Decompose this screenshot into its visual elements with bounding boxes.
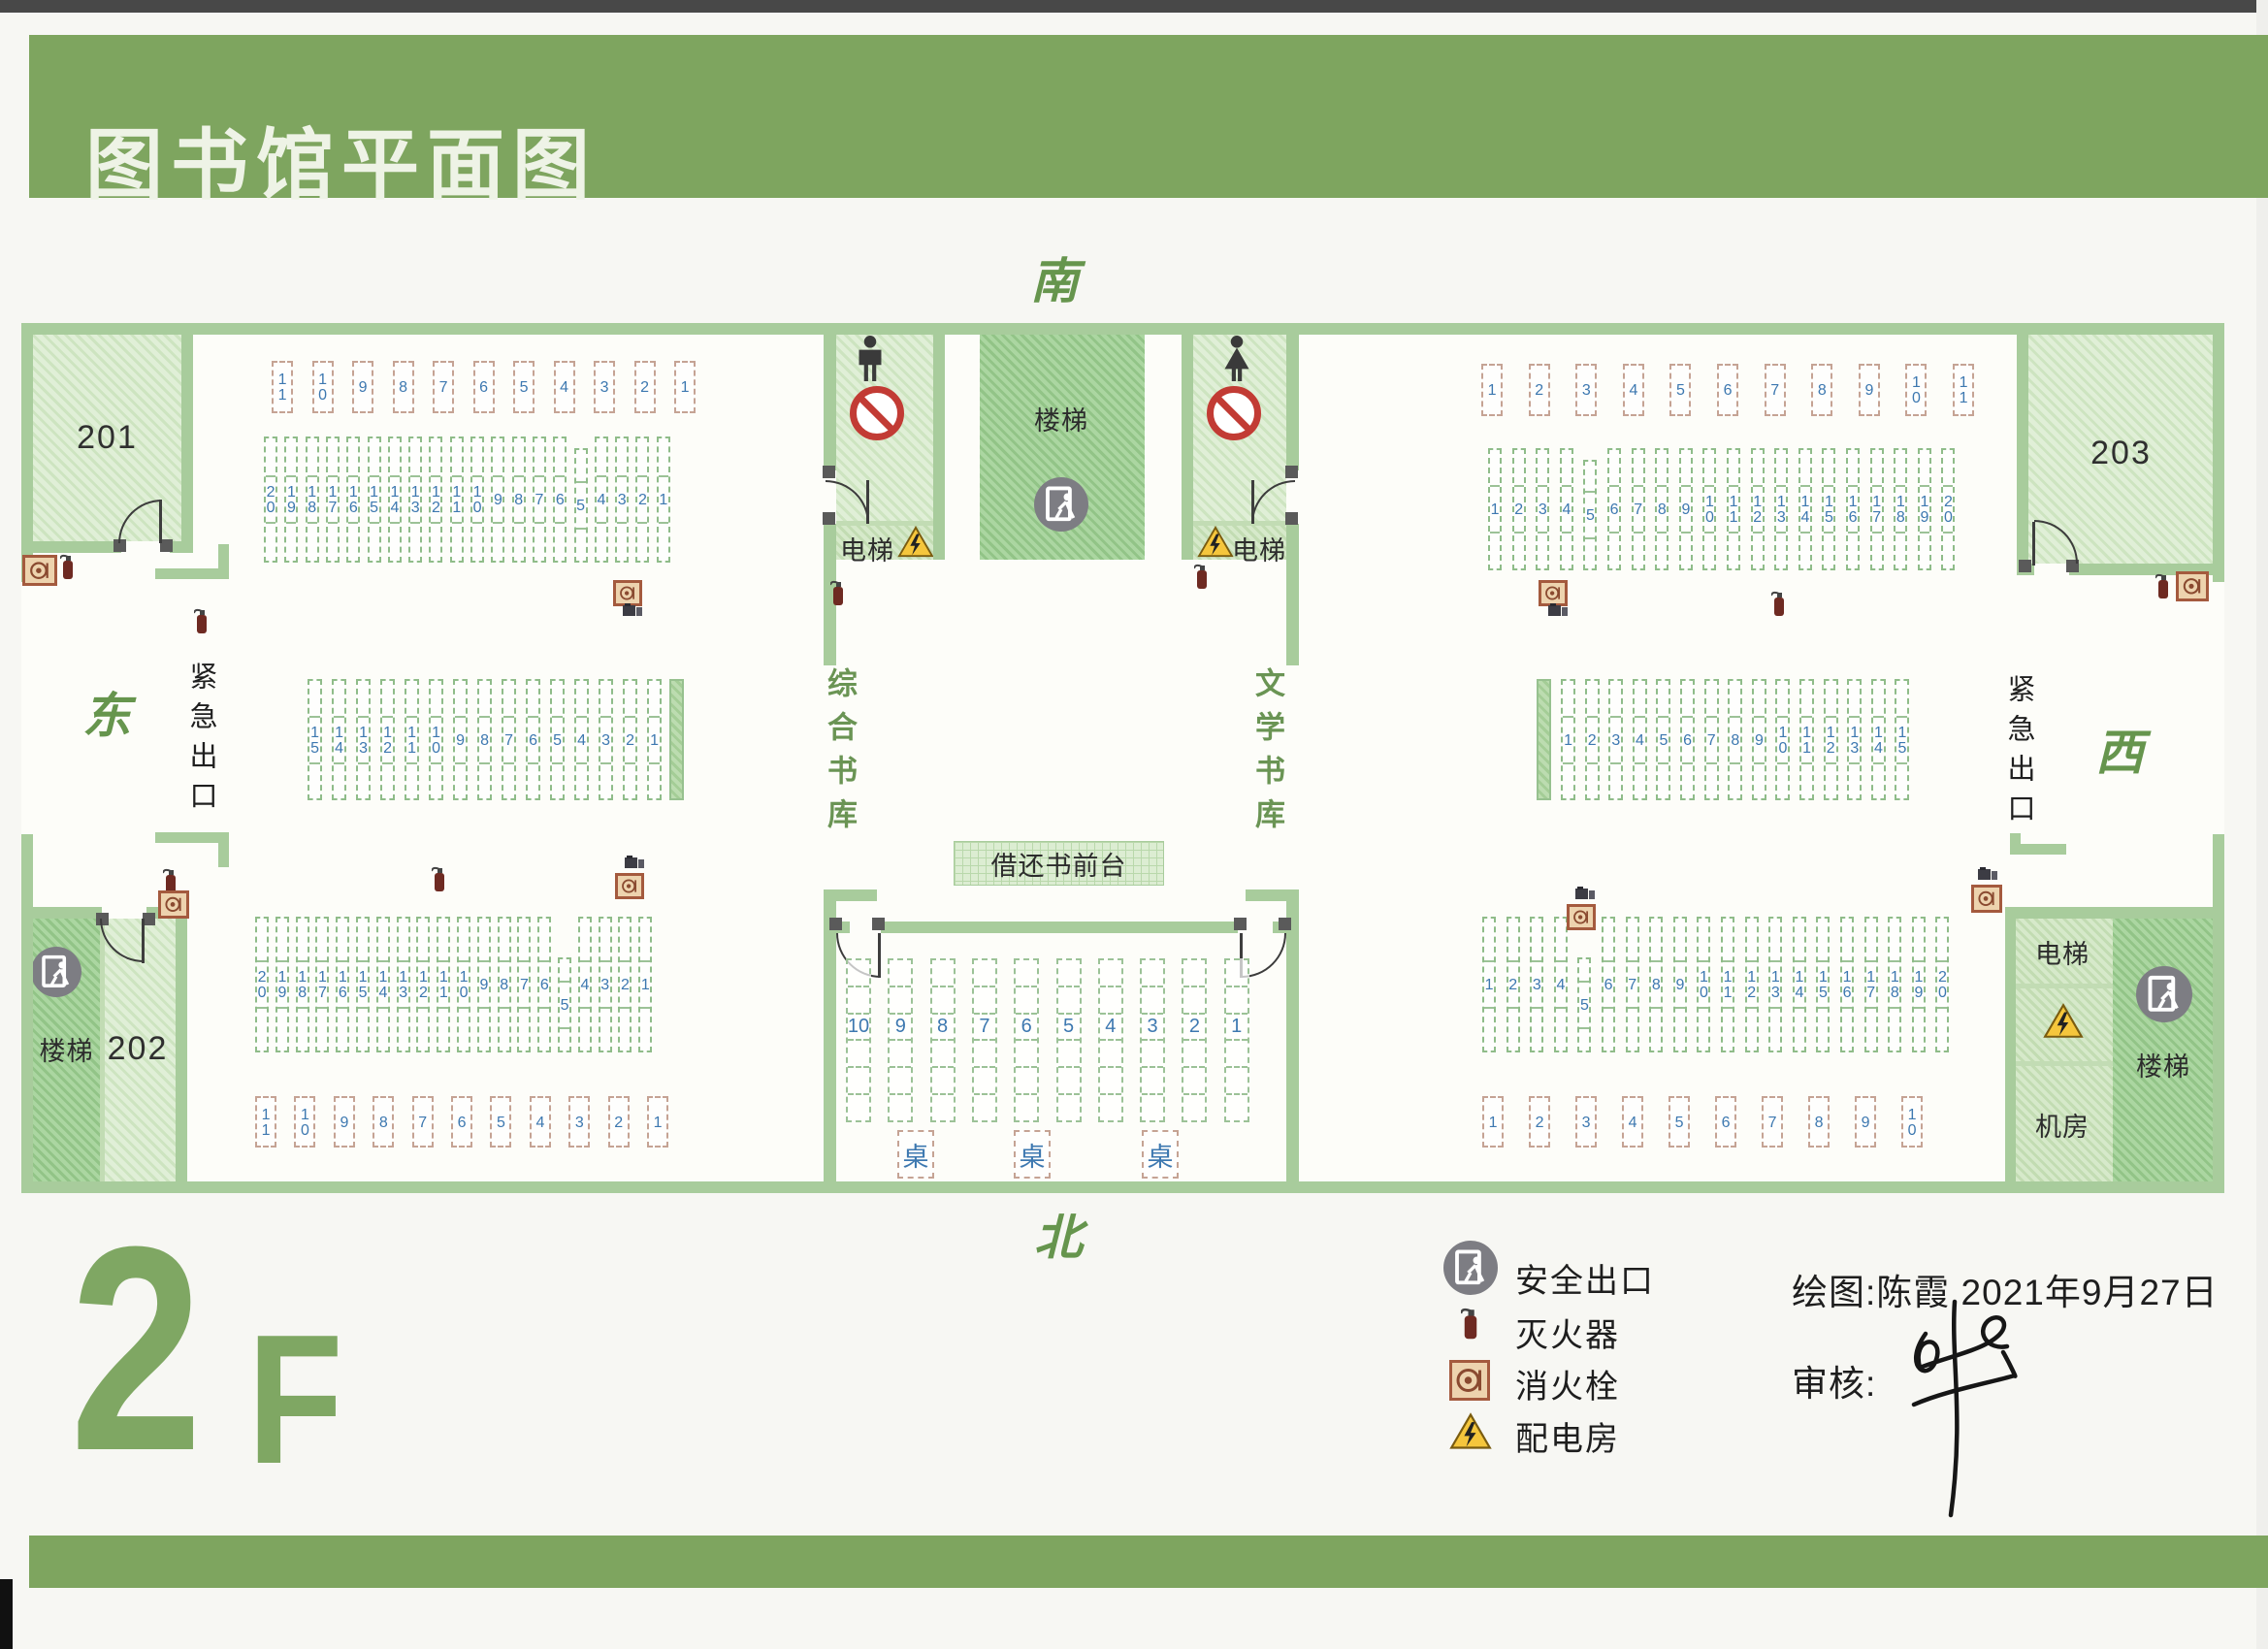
fire-hydrant-icon xyxy=(158,890,189,919)
shelf-part: 15 xyxy=(358,960,368,1009)
shelf-part: 6 xyxy=(1682,716,1693,764)
bookshelf: 12 xyxy=(1751,448,1765,570)
bookshelf: 1 xyxy=(1482,1096,1504,1148)
table-cell xyxy=(1226,1095,1247,1120)
shelf-part xyxy=(1800,450,1810,485)
shelf-part: 7 xyxy=(1706,716,1717,764)
bookshelf: 6 xyxy=(451,1096,472,1148)
power-warning-icon-left xyxy=(897,526,934,559)
shelf-part: 18 xyxy=(308,475,317,524)
bookshelf: 15 xyxy=(308,679,322,800)
bookshelf: 3 xyxy=(599,917,612,1052)
shelf-part: 9 xyxy=(479,960,489,1009)
fire-extinguisher-icon xyxy=(60,553,76,580)
reading-table: 9 xyxy=(888,958,913,1122)
bookshelf: 7 xyxy=(1704,679,1719,800)
shelf-part xyxy=(1890,919,1899,960)
table-cell: 1 xyxy=(1226,1015,1247,1042)
table-cell xyxy=(974,1095,995,1120)
floor-number: 2 xyxy=(70,1203,203,1494)
shelf-part: 8 xyxy=(1651,960,1661,1009)
table-cell: 4 xyxy=(1100,1015,1121,1042)
bookshelf: 8 xyxy=(498,917,511,1052)
wall xyxy=(21,323,33,582)
bookshelf: 9 xyxy=(477,917,491,1052)
shelf-part xyxy=(1866,1009,1876,1051)
shelf-part xyxy=(309,764,320,799)
shelf-part xyxy=(257,919,267,960)
shelf-part: 5 xyxy=(1579,981,1589,1029)
desk-zone-label-1: 桌 xyxy=(897,1130,934,1179)
shelf-part xyxy=(1514,533,1524,568)
shelf-part: 3 xyxy=(617,475,627,524)
shelf-part xyxy=(535,524,544,561)
shelf-part xyxy=(620,919,630,960)
table-cell xyxy=(932,1095,954,1120)
shelf-part xyxy=(1873,764,1884,799)
shelf-part xyxy=(555,524,565,561)
shelf-part: 4 xyxy=(597,475,606,524)
shelf-part: 17 xyxy=(328,475,338,524)
shelf-part xyxy=(555,438,565,475)
bookshelf: 9 xyxy=(1679,448,1693,570)
shelf-part xyxy=(1723,1009,1733,1051)
door-post xyxy=(872,918,885,930)
shelf-part xyxy=(1538,533,1547,568)
shelf-part xyxy=(600,764,611,799)
shelf-part xyxy=(459,919,469,960)
table-cell: 9 xyxy=(890,1015,911,1042)
table-cell xyxy=(1183,987,1205,1015)
shelf-part xyxy=(358,764,369,799)
door-post xyxy=(1285,466,1298,478)
shelf-part: 5 xyxy=(1658,716,1669,764)
shelf-part xyxy=(298,919,308,960)
bookshelf: 3 xyxy=(1536,448,1549,570)
table-cell xyxy=(1183,1041,1205,1068)
door-post xyxy=(2019,560,2031,572)
bookshelf: 5 xyxy=(1656,679,1670,800)
power-room-icon xyxy=(1449,1412,1492,1451)
shelf-part xyxy=(1848,450,1858,485)
shelf-part xyxy=(1754,764,1765,799)
fire-extinguisher-unit-icon xyxy=(624,856,645,871)
shelf-part xyxy=(418,919,428,960)
table-cell xyxy=(1058,987,1080,1015)
shelf-part: 5 xyxy=(552,716,563,764)
bookshelf: 5 xyxy=(558,957,571,1052)
table-cell xyxy=(1100,987,1121,1015)
shelf-part: 3 xyxy=(1610,716,1621,764)
shelf-part xyxy=(348,438,358,475)
shelf-part xyxy=(438,919,448,960)
shelf-part xyxy=(1610,764,1621,799)
shelf-part xyxy=(552,681,563,716)
shelf-part xyxy=(519,919,529,960)
shelf-part xyxy=(1699,919,1708,960)
table-cell xyxy=(1058,1041,1080,1068)
bookshelf: 8 xyxy=(512,436,526,563)
bookshelf: 11 xyxy=(450,436,464,563)
reading-table: 7 xyxy=(972,958,997,1122)
bookshelf: 19 xyxy=(1918,448,1931,570)
shelf-part xyxy=(1579,1029,1589,1051)
wall xyxy=(1286,323,1299,470)
bookshelf: 2 xyxy=(1585,679,1600,800)
bookshelf: 4 xyxy=(1560,448,1573,570)
stairs-center-label: 楼梯 xyxy=(1034,400,1088,437)
shelf-part: 6 xyxy=(539,960,549,1009)
fire-hydrant-icon xyxy=(1539,580,1568,606)
bookshelf: 10 xyxy=(1901,1096,1923,1148)
bookshelf: 10 xyxy=(457,917,470,1052)
bookshelf: 13 xyxy=(1768,917,1782,1052)
shelf-part: 18 xyxy=(1895,485,1905,533)
fire-hydrant-icon xyxy=(2176,571,2209,601)
shelf-part: 12 xyxy=(1826,716,1836,764)
bookshelf: 1 xyxy=(674,361,696,413)
shelf-part: 14 xyxy=(1800,485,1810,533)
shelf-part xyxy=(576,450,586,481)
shelf-part xyxy=(500,1009,509,1051)
shelf-part xyxy=(358,919,368,960)
fire-extinguisher-icon xyxy=(1194,563,1210,590)
shelf-part xyxy=(637,524,647,561)
table-cell xyxy=(1142,1095,1163,1120)
bookshelf: 4 xyxy=(578,917,592,1052)
fire-hydrant-icon xyxy=(1567,904,1596,930)
shelf-number: 9 xyxy=(337,1115,351,1130)
shelf-part xyxy=(1675,919,1685,960)
power-warning-icon-right xyxy=(1197,526,1234,559)
shelf-part xyxy=(539,919,549,960)
bookshelf: 11 xyxy=(1727,448,1740,570)
shelf-part xyxy=(514,438,524,475)
shelf-part: 14 xyxy=(390,475,400,524)
shelf-number: 4 xyxy=(533,1115,547,1130)
shelf-part xyxy=(309,681,320,716)
elevator-southwest-label: 电梯 xyxy=(2035,933,2090,971)
wall xyxy=(2010,844,2066,855)
bookshelf: 6 xyxy=(1680,679,1695,800)
shelf-part xyxy=(390,524,400,561)
shelf-part: 9 xyxy=(1754,716,1765,764)
shelf-part xyxy=(597,524,606,561)
shelf-number: 5 xyxy=(1671,1115,1686,1130)
shelf-part: 8 xyxy=(514,475,524,524)
bookshelf: 6 xyxy=(553,436,567,563)
footer-band xyxy=(29,1536,2268,1588)
shelf-part xyxy=(1675,1009,1685,1051)
fire-hydrant-icon xyxy=(613,580,642,606)
shelf-part xyxy=(600,1009,610,1051)
fire-hydrant-icon xyxy=(615,873,644,899)
bookshelf: 1 xyxy=(1482,917,1496,1052)
bookshelf: 16 xyxy=(1840,917,1854,1052)
bookshelf: 5 xyxy=(1669,364,1691,416)
shelf-part xyxy=(1896,681,1907,716)
shelf-part xyxy=(1730,681,1740,716)
compass-west: 西 xyxy=(2095,714,2144,784)
wall xyxy=(176,919,187,1181)
fire-extinguisher-icon xyxy=(2155,572,2171,599)
shelf-part: 4 xyxy=(576,716,587,764)
shelf-part xyxy=(600,681,611,716)
safety-exit-icon-left xyxy=(31,947,81,997)
shelf-part xyxy=(1842,1009,1852,1051)
shelf-part: 10 xyxy=(1699,960,1708,1009)
bookshelf: 7 xyxy=(533,436,546,563)
shelf-part xyxy=(1706,681,1717,716)
bookshelf: 12 xyxy=(1745,917,1759,1052)
shelf-part xyxy=(1706,764,1717,799)
fire-extinguisher-icon xyxy=(194,607,210,634)
shelf-part xyxy=(459,1009,469,1051)
shelf-part: 15 xyxy=(1818,960,1828,1009)
bookshelf: 14 xyxy=(1793,917,1806,1052)
bookshelf: 5 xyxy=(1577,957,1591,1052)
floor-suffix: F xyxy=(247,1308,343,1492)
bookshelf: 20 xyxy=(264,436,277,563)
no-entry-icon-right xyxy=(1207,386,1261,440)
shelf-part xyxy=(1920,450,1929,485)
shelf-number: 7 xyxy=(415,1115,430,1130)
bookshelf: 2 xyxy=(608,1096,630,1148)
table-cell xyxy=(1142,1041,1163,1068)
shelf-part: 7 xyxy=(503,716,514,764)
shelf-part xyxy=(418,1009,428,1051)
shelf-part: 10 xyxy=(1704,485,1714,533)
shelf-part xyxy=(1657,450,1667,485)
bookshelf: 4 xyxy=(530,1096,551,1148)
door-post xyxy=(1234,918,1247,930)
legend-fire-hydrant-label: 消火栓 xyxy=(1515,1360,1620,1407)
shelf-part xyxy=(1651,1009,1661,1051)
shelf-part: 10 xyxy=(1777,716,1788,764)
shelf-part: 8 xyxy=(1730,716,1740,764)
bookshelf: 11 xyxy=(1799,679,1814,800)
shelf-part xyxy=(308,524,317,561)
shelf-part xyxy=(1609,533,1619,568)
shelf-part: 15 xyxy=(370,475,379,524)
bookshelf: 12 xyxy=(1824,679,1838,800)
shelf-part: 4 xyxy=(1635,716,1645,764)
shelf-part xyxy=(390,438,400,475)
shelf-part xyxy=(535,438,544,475)
fire-extinguisher-icon xyxy=(432,865,447,892)
shelf-part xyxy=(1704,533,1714,568)
bookshelf: 8 xyxy=(1649,917,1663,1052)
scan-edge-right xyxy=(2256,0,2268,1649)
shelf-part xyxy=(452,438,462,475)
female-icon xyxy=(1217,336,1256,382)
bookshelf: 20 xyxy=(1935,917,1949,1052)
shelf-part xyxy=(649,681,660,716)
table-cell xyxy=(1058,960,1080,987)
bookshelf: 1 xyxy=(647,1096,668,1148)
shelf-number: 7 xyxy=(436,379,450,395)
shelf-part xyxy=(659,438,668,475)
shelf-part xyxy=(552,764,563,799)
machine-room-label: 机房 xyxy=(2035,1106,2090,1144)
bookshelf: 10 xyxy=(1702,448,1716,570)
shelf-part xyxy=(1484,1009,1494,1051)
table-cell xyxy=(1142,987,1163,1015)
reviewer-signature xyxy=(1887,1290,2042,1523)
shelf-part xyxy=(493,438,502,475)
wall xyxy=(155,568,229,579)
wall xyxy=(181,335,193,553)
table-cell xyxy=(848,960,869,987)
shelf-part xyxy=(528,681,538,716)
shelf-part: 1 xyxy=(649,716,660,764)
shelf-part: 19 xyxy=(1920,485,1929,533)
bookshelf: 3 xyxy=(594,361,615,413)
fire-extinguisher-unit-icon xyxy=(1574,887,1596,902)
shelf-part xyxy=(452,524,462,561)
bookshelf: 11 xyxy=(1953,364,1974,416)
shelf-number: 10 xyxy=(1909,374,1924,405)
bookshelf: 8 xyxy=(1655,448,1669,570)
shelf-part xyxy=(286,438,296,475)
bookshelf: 9 xyxy=(334,1096,355,1148)
shelf-part: 8 xyxy=(500,960,509,1009)
literature-stacks-label: 文学书库 xyxy=(1252,667,1282,842)
reading-table: 10 xyxy=(846,958,871,1122)
shelf-part xyxy=(1562,533,1571,568)
shelf-part: 12 xyxy=(1747,960,1757,1009)
shelf-part: 3 xyxy=(600,716,611,764)
shelf-part: 15 xyxy=(1896,716,1907,764)
shelf-part: 6 xyxy=(1609,485,1619,533)
shelf-part xyxy=(479,1009,489,1051)
shelf-part: 17 xyxy=(1866,960,1876,1009)
shelf-part xyxy=(576,764,587,799)
shelf-part xyxy=(328,438,338,475)
shelf-part xyxy=(479,764,490,799)
shelf-part: 13 xyxy=(1770,960,1780,1009)
shelf-number: 6 xyxy=(1720,382,1734,398)
bookshelf: 14 xyxy=(332,679,346,800)
bookshelf: 7 xyxy=(1765,364,1786,416)
bookshelf: 7 xyxy=(433,361,454,413)
wall xyxy=(824,323,836,470)
bookshelf: 11 xyxy=(1721,917,1734,1052)
shelf-part xyxy=(1776,533,1786,568)
shelf-part xyxy=(1873,681,1884,716)
bookshelf: 6 xyxy=(1602,917,1615,1052)
bookshelf: 8 xyxy=(1811,364,1832,416)
shelf-part xyxy=(479,681,490,716)
shelf-part: 13 xyxy=(410,475,420,524)
reviewer-credit: 审核: xyxy=(1792,1354,1876,1406)
shelf-part: 11 xyxy=(406,716,417,764)
shelf-part: 2 xyxy=(637,475,647,524)
wall-divider xyxy=(2016,984,2113,988)
bookshelf: 3 xyxy=(568,1096,590,1148)
shelf-part xyxy=(1490,533,1500,568)
shelf-number: 4 xyxy=(557,379,571,395)
fire-extinguisher-unit-icon xyxy=(622,603,643,619)
bookshelf: 18 xyxy=(296,917,309,1052)
bookshelf: 2 xyxy=(634,361,656,413)
shelf-part xyxy=(1943,450,1953,485)
reading-table: 5 xyxy=(1056,958,1082,1122)
wall xyxy=(2017,335,2028,575)
fire-extinguisher-icon xyxy=(1771,590,1787,617)
bookshelf: 11 xyxy=(437,917,450,1052)
stairs-right-label: 楼梯 xyxy=(2136,1046,2190,1083)
door-post xyxy=(829,918,842,930)
bookshelf: 1 xyxy=(1488,448,1502,570)
shelf-part xyxy=(308,438,317,475)
shelf-number: 7 xyxy=(1767,382,1782,398)
shelf-part xyxy=(1587,764,1598,799)
bookshelf: 6 xyxy=(1717,364,1738,416)
bookshelf: 7 xyxy=(412,1096,434,1148)
shelf-part: 5 xyxy=(576,481,586,530)
compass-south: 南 xyxy=(1030,242,1079,312)
shelf-part xyxy=(1563,764,1573,799)
table-cell xyxy=(932,960,954,987)
bookshelf: 8 xyxy=(1808,1096,1830,1148)
shelf-part: 5 xyxy=(1585,491,1595,539)
shelf-part xyxy=(625,764,635,799)
shelf-part: 9 xyxy=(1675,960,1685,1009)
shelf-part: 1 xyxy=(1484,960,1494,1009)
shelf-part: 11 xyxy=(1723,960,1733,1009)
table-cell xyxy=(974,1041,995,1068)
table-cell xyxy=(1058,1068,1080,1095)
shelf-part xyxy=(1770,1009,1780,1051)
shelf-part: 9 xyxy=(493,475,502,524)
shelf-part xyxy=(1914,919,1924,960)
bookshelf: 19 xyxy=(275,917,289,1052)
table-cell xyxy=(848,987,869,1015)
shelf-part xyxy=(1866,919,1876,960)
shelf-part xyxy=(266,524,275,561)
shelf-part: 18 xyxy=(298,960,308,1009)
shelf-part xyxy=(1634,533,1643,568)
bookshelf: 9 xyxy=(453,679,468,800)
wall xyxy=(155,832,229,843)
shelf-part: 6 xyxy=(555,475,565,524)
shelf-part xyxy=(472,438,482,475)
shelf-part xyxy=(399,919,408,960)
shelf-number: 4 xyxy=(1625,1115,1639,1130)
shelf-part xyxy=(1723,919,1733,960)
shelf-number: 8 xyxy=(376,1115,391,1130)
table-cell xyxy=(1016,987,1037,1015)
emergency-exit-west-label: 紧急出口 xyxy=(2004,674,2032,833)
bookshelf: 5 xyxy=(574,448,588,563)
fire-extinguisher-icon xyxy=(1461,1306,1480,1341)
shelf-number: 11 xyxy=(275,372,289,403)
shelf-part: 3 xyxy=(1538,485,1547,533)
bookshelf: 20 xyxy=(1941,448,1955,570)
bookshelf: 15 xyxy=(356,917,370,1052)
shelf-part xyxy=(431,764,441,799)
shelf-part xyxy=(472,524,482,561)
bookshelf: 2 xyxy=(1529,364,1550,416)
bookshelf: 4 xyxy=(1623,364,1644,416)
shelf-part xyxy=(560,1029,569,1051)
shelf-part xyxy=(1937,919,1947,960)
fire-extinguisher-unit-icon xyxy=(1547,603,1569,619)
shelf-part xyxy=(1943,533,1953,568)
bookshelf: 13 xyxy=(408,436,422,563)
shelf-number: 3 xyxy=(572,1115,587,1130)
